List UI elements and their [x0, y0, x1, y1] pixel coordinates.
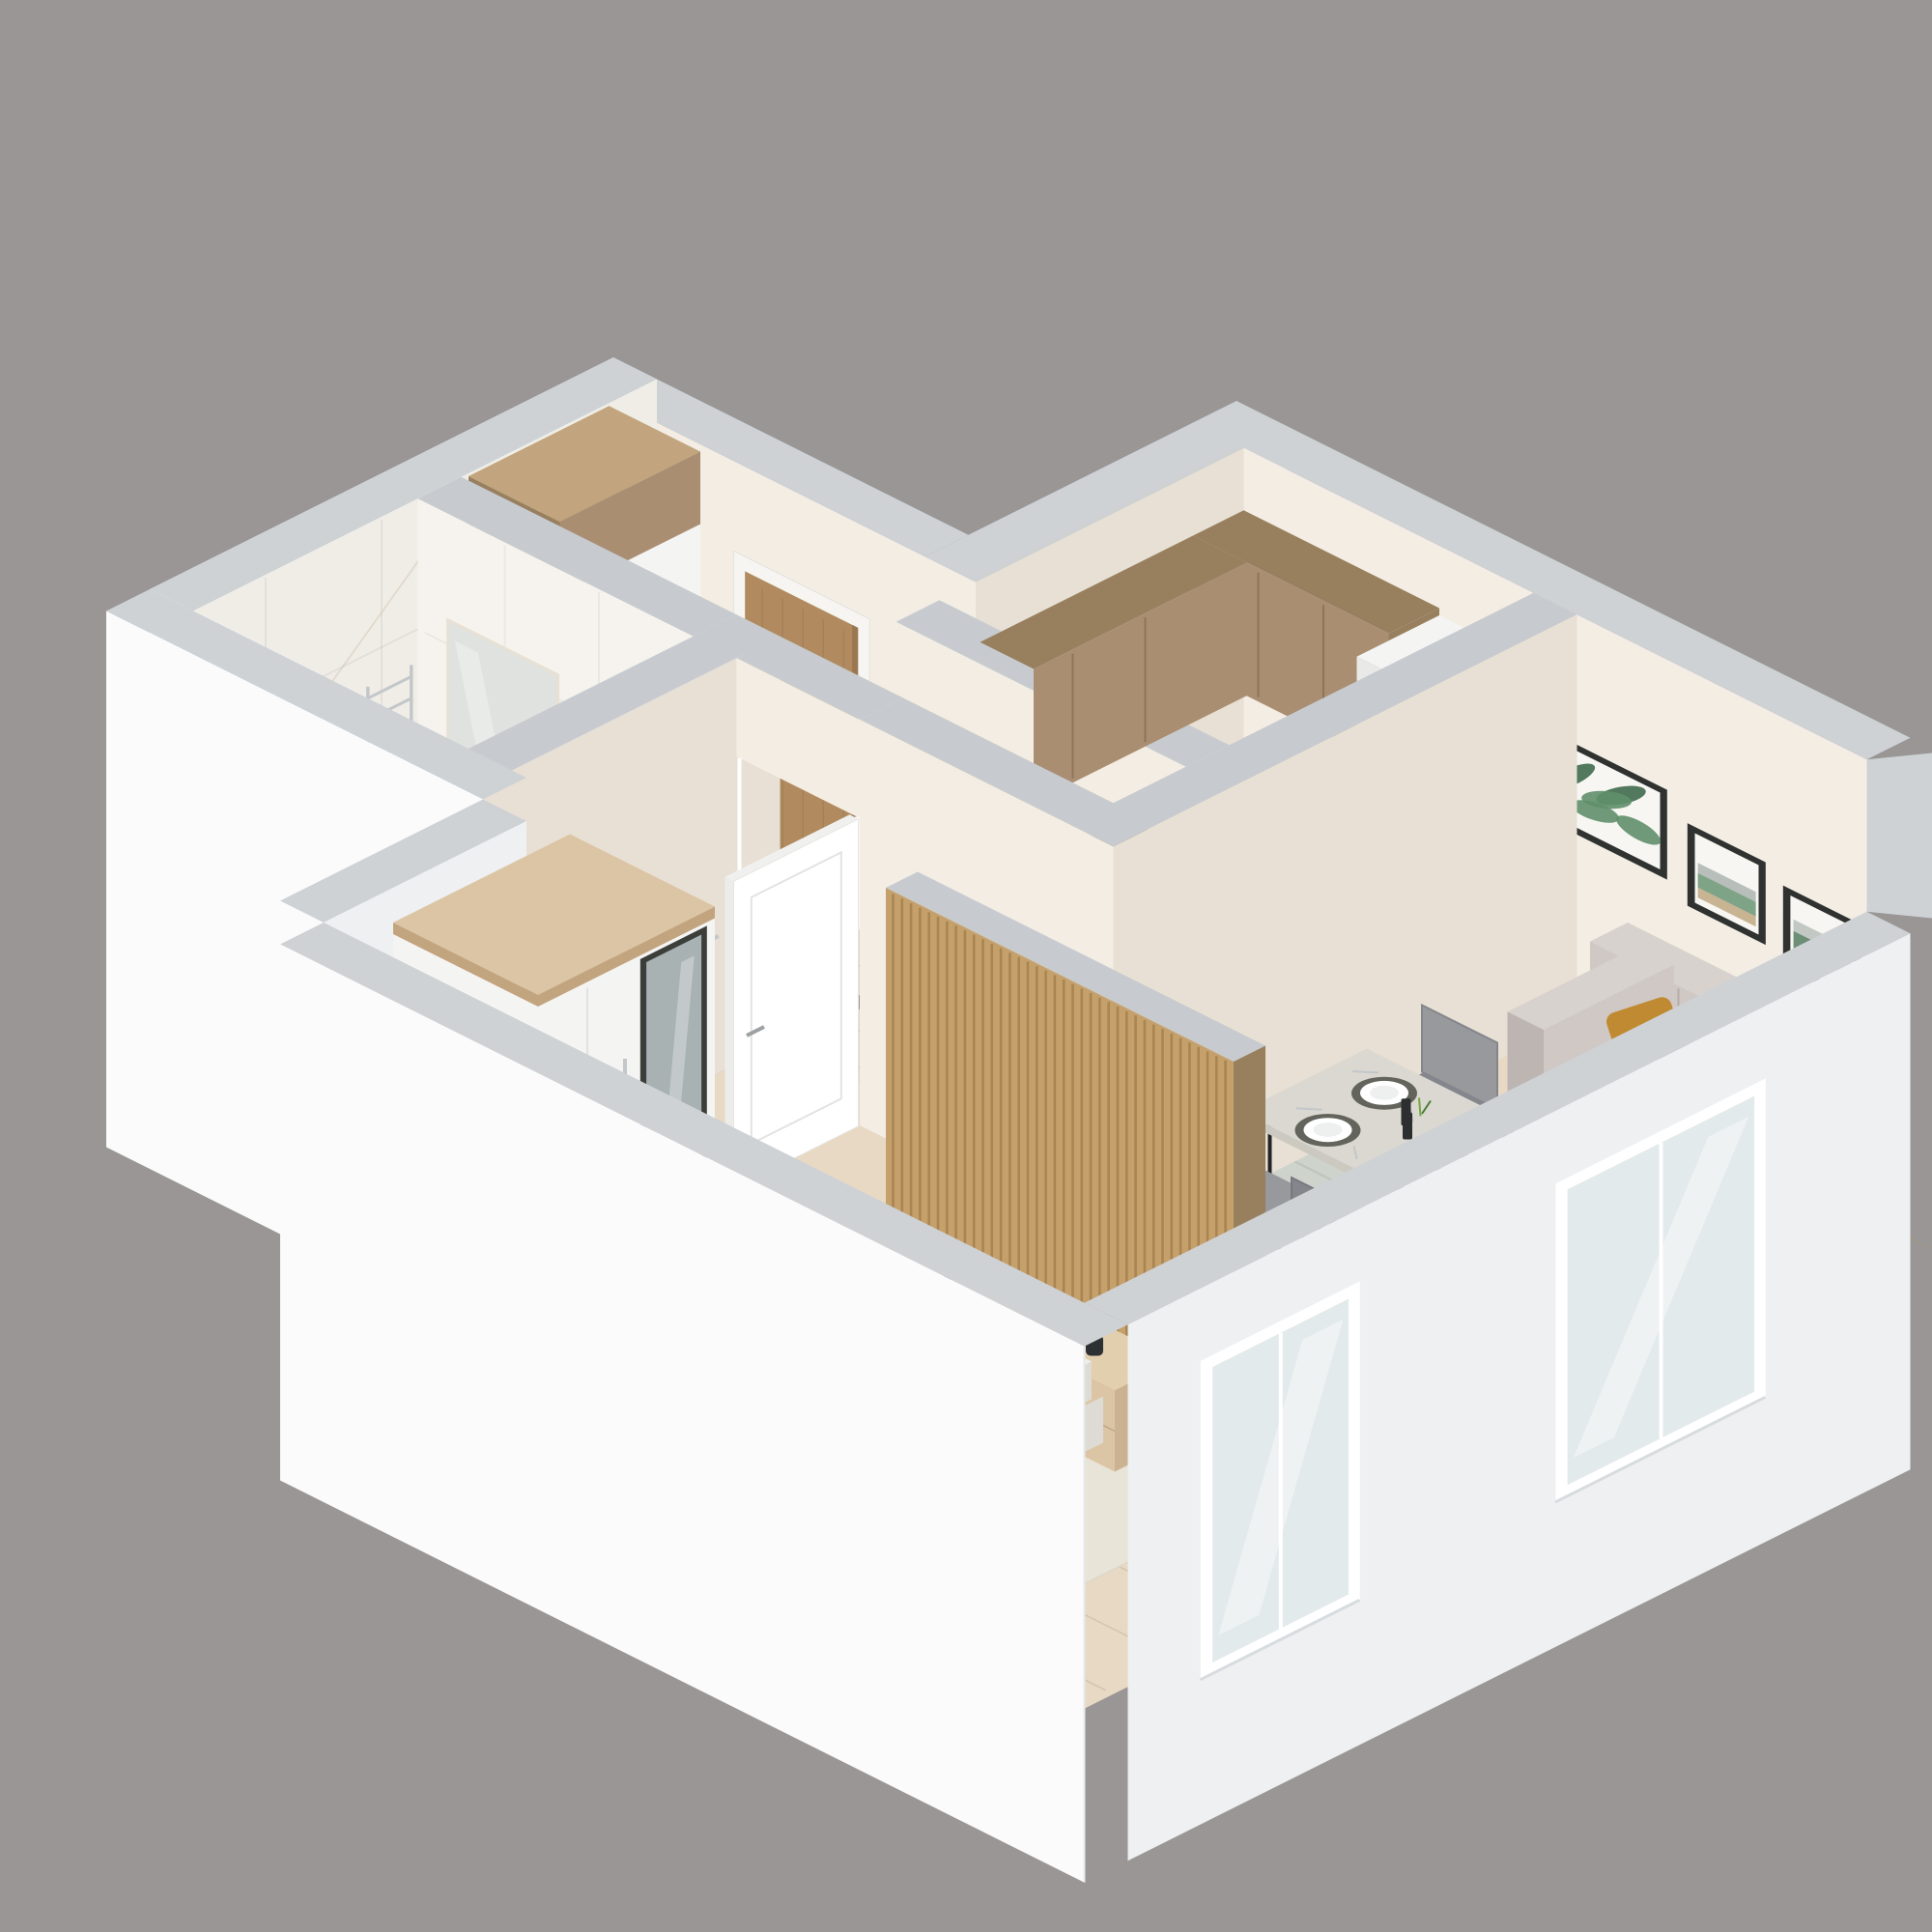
floorplan-render — [0, 0, 1932, 1932]
white-door — [725, 814, 859, 1188]
isometric-apartment-scene — [0, 0, 1932, 1932]
